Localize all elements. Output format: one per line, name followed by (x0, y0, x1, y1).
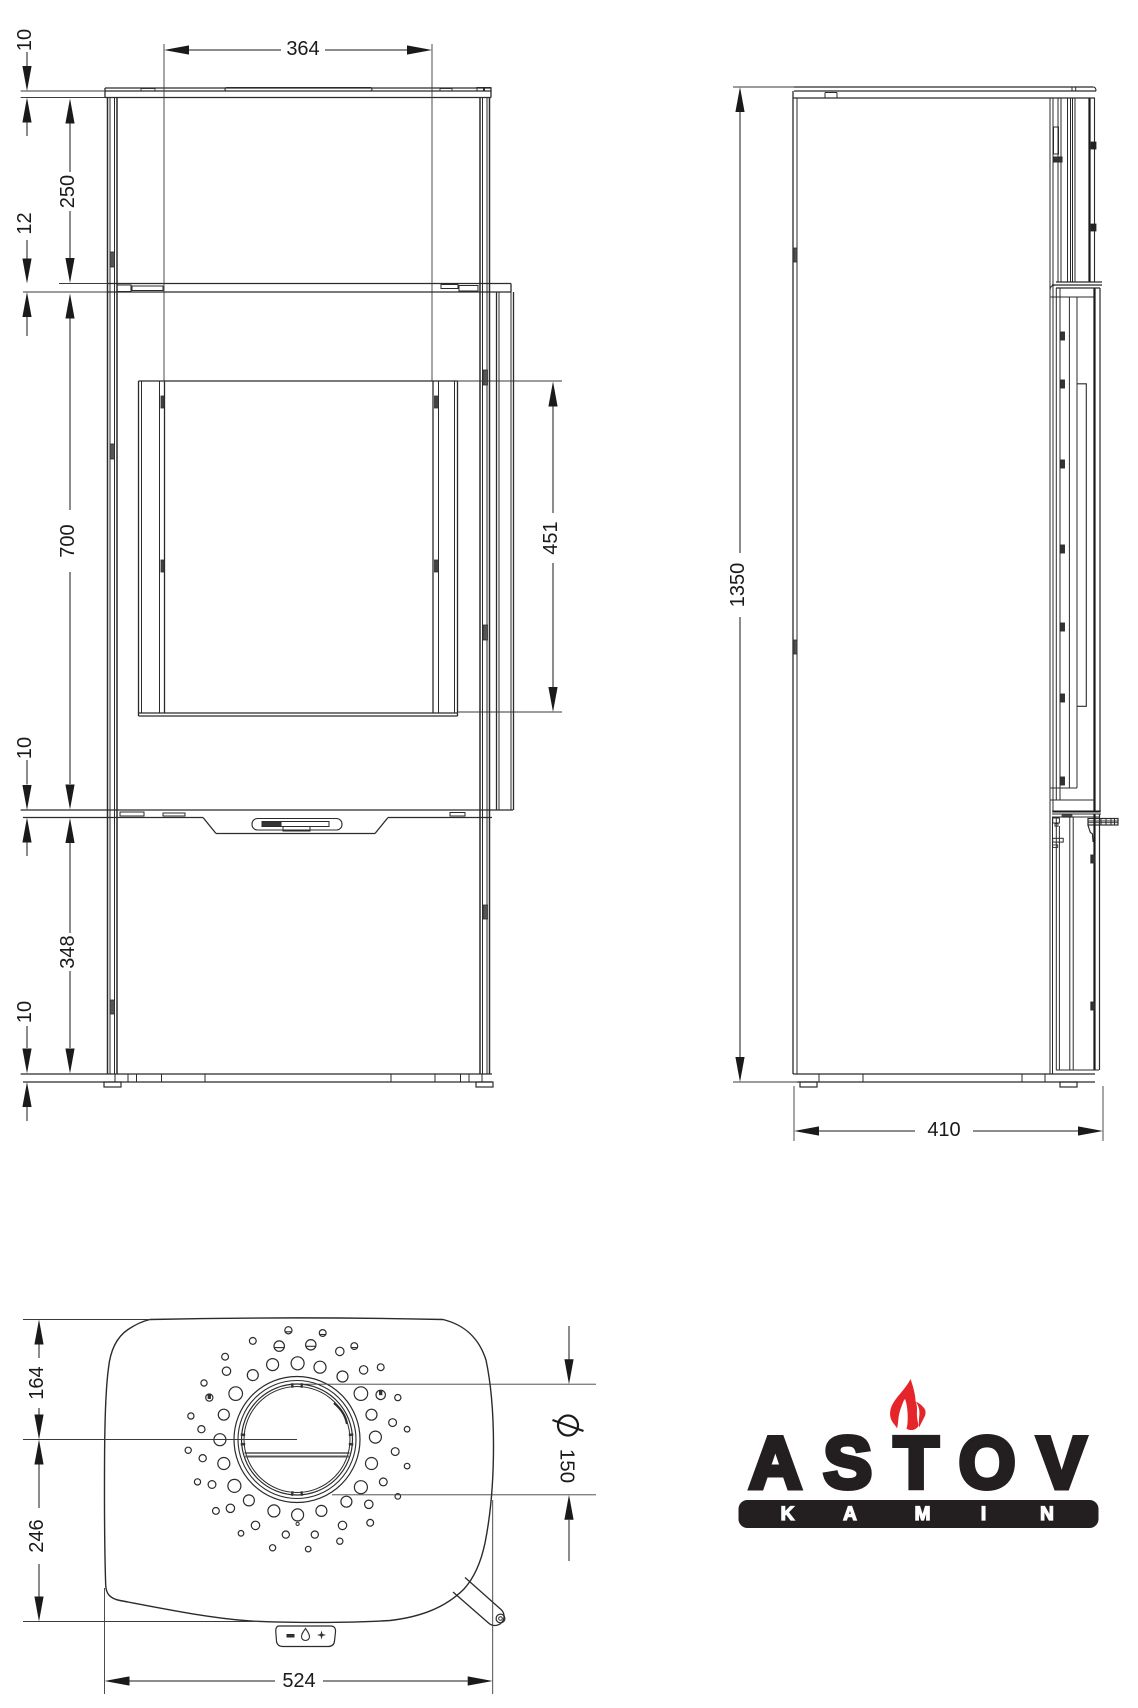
svg-text:348: 348 (57, 935, 79, 968)
svg-text:K: K (781, 1504, 795, 1525)
svg-text:I: I (981, 1504, 986, 1525)
svg-text:410: 410 (927, 1119, 960, 1141)
svg-text:364: 364 (286, 38, 319, 60)
svg-text:1350: 1350 (727, 563, 749, 608)
svg-text:150: 150 (556, 1449, 579, 1483)
svg-text:164: 164 (26, 1366, 48, 1399)
svg-text:246: 246 (26, 1519, 48, 1552)
svg-text:12: 12 (14, 212, 36, 234)
svg-text:700: 700 (57, 524, 79, 557)
svg-text:10: 10 (14, 737, 36, 759)
svg-text:A: A (843, 1504, 857, 1525)
svg-text:N: N (1040, 1504, 1054, 1525)
svg-text:451: 451 (540, 521, 562, 554)
svg-text:M: M (915, 1504, 931, 1525)
svg-text:524: 524 (282, 1670, 315, 1692)
svg-text:10: 10 (14, 29, 36, 51)
svg-text:250: 250 (57, 175, 79, 208)
svg-text:10: 10 (14, 1001, 36, 1023)
